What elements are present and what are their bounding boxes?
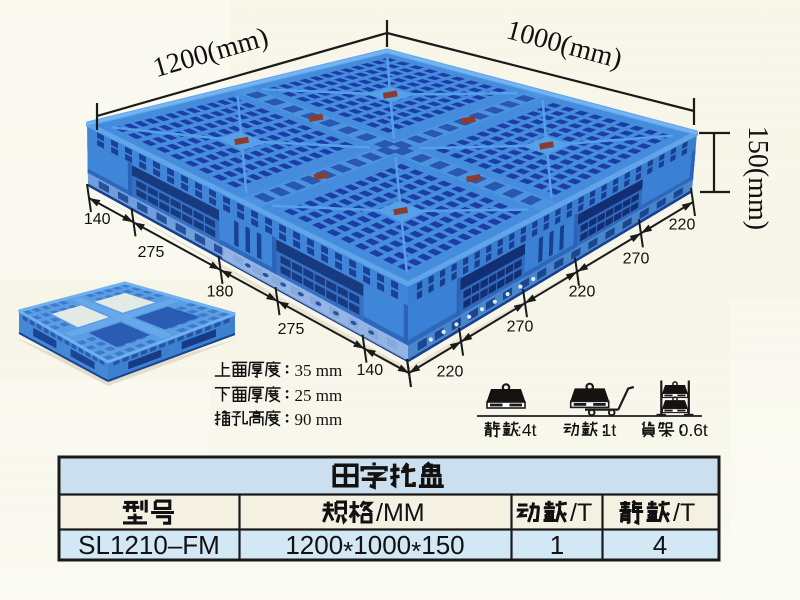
svg-text:220: 220 <box>569 284 596 301</box>
svg-text:140: 140 <box>356 362 383 379</box>
svg-text:/T: /T <box>570 499 592 527</box>
svg-text:140: 140 <box>84 211 111 228</box>
svg-text:275: 275 <box>278 321 305 338</box>
svg-text::4t: :4t <box>517 420 537 440</box>
svg-text:35 mm: 35 mm <box>295 361 343 380</box>
svg-text:/MM: /MM <box>376 499 425 527</box>
svg-text:275: 275 <box>138 244 165 261</box>
svg-text:270: 270 <box>623 251 650 268</box>
svg-text:SL1210–FM: SL1210–FM <box>78 530 220 560</box>
svg-text:1: 1 <box>550 530 564 560</box>
svg-text:25 mm: 25 mm <box>295 386 343 405</box>
svg-text:90 mm: 90 mm <box>295 410 343 429</box>
svg-text:220: 220 <box>437 363 464 380</box>
svg-text:4: 4 <box>653 530 667 560</box>
svg-text:1t: 1t <box>602 420 617 440</box>
svg-text:/T: /T <box>673 499 695 527</box>
svg-text:150(mm): 150(mm) <box>742 126 773 230</box>
svg-text:0.6t: 0.6t <box>679 420 708 440</box>
svg-text:270: 270 <box>507 318 534 335</box>
svg-text:220: 220 <box>669 217 696 234</box>
svg-text:180: 180 <box>207 284 234 301</box>
